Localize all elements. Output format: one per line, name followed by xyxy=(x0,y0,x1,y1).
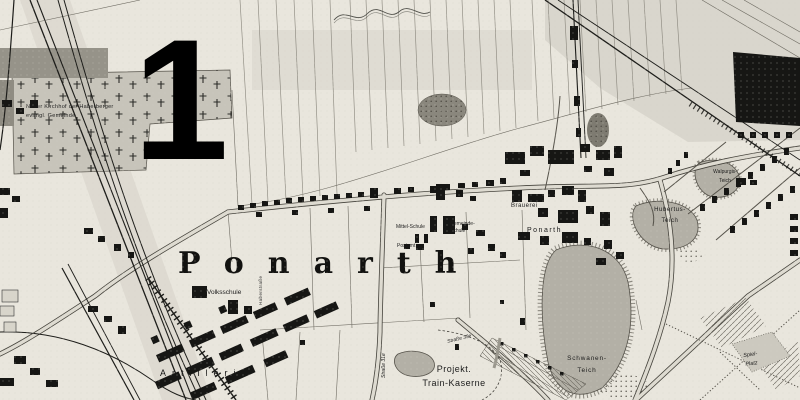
outlined-plots xyxy=(0,290,18,332)
place-title-ponarth: Ponarth xyxy=(178,246,481,282)
gemeindeschule-label: Gemeinde- Schule xyxy=(450,221,475,234)
mittelschule-label: Mittel-Schule xyxy=(396,224,425,230)
brauerei-label: Brauerei xyxy=(511,203,538,210)
brauerei-place-label: Ponarth xyxy=(527,227,562,235)
projekt-train-kaserne-label: Projekt. Train-Kaserne xyxy=(404,363,504,391)
street-name-vertical: Haberstraße xyxy=(258,276,263,305)
cemetery-label: Neuer Kirchhof der Haberberger evangl. G… xyxy=(26,103,132,122)
map-artwork: Artillerie xyxy=(0,0,800,400)
schwanenteich-label: Schwanen- Teich xyxy=(563,353,611,378)
hubertusteich-label: Hubertus- Teich xyxy=(645,205,695,228)
strasse-31e-label: Straße 31e xyxy=(381,353,387,378)
map-canvas[interactable]: Artillerie xyxy=(0,0,800,400)
postamt-label: Postamt xyxy=(397,243,415,249)
overlay-number-annotation: 1 xyxy=(133,14,229,186)
walpurgisteich-label: Walpurgis- Teich xyxy=(703,168,747,186)
volksschule-label: Volksschule xyxy=(207,289,241,297)
stream xyxy=(334,9,430,23)
